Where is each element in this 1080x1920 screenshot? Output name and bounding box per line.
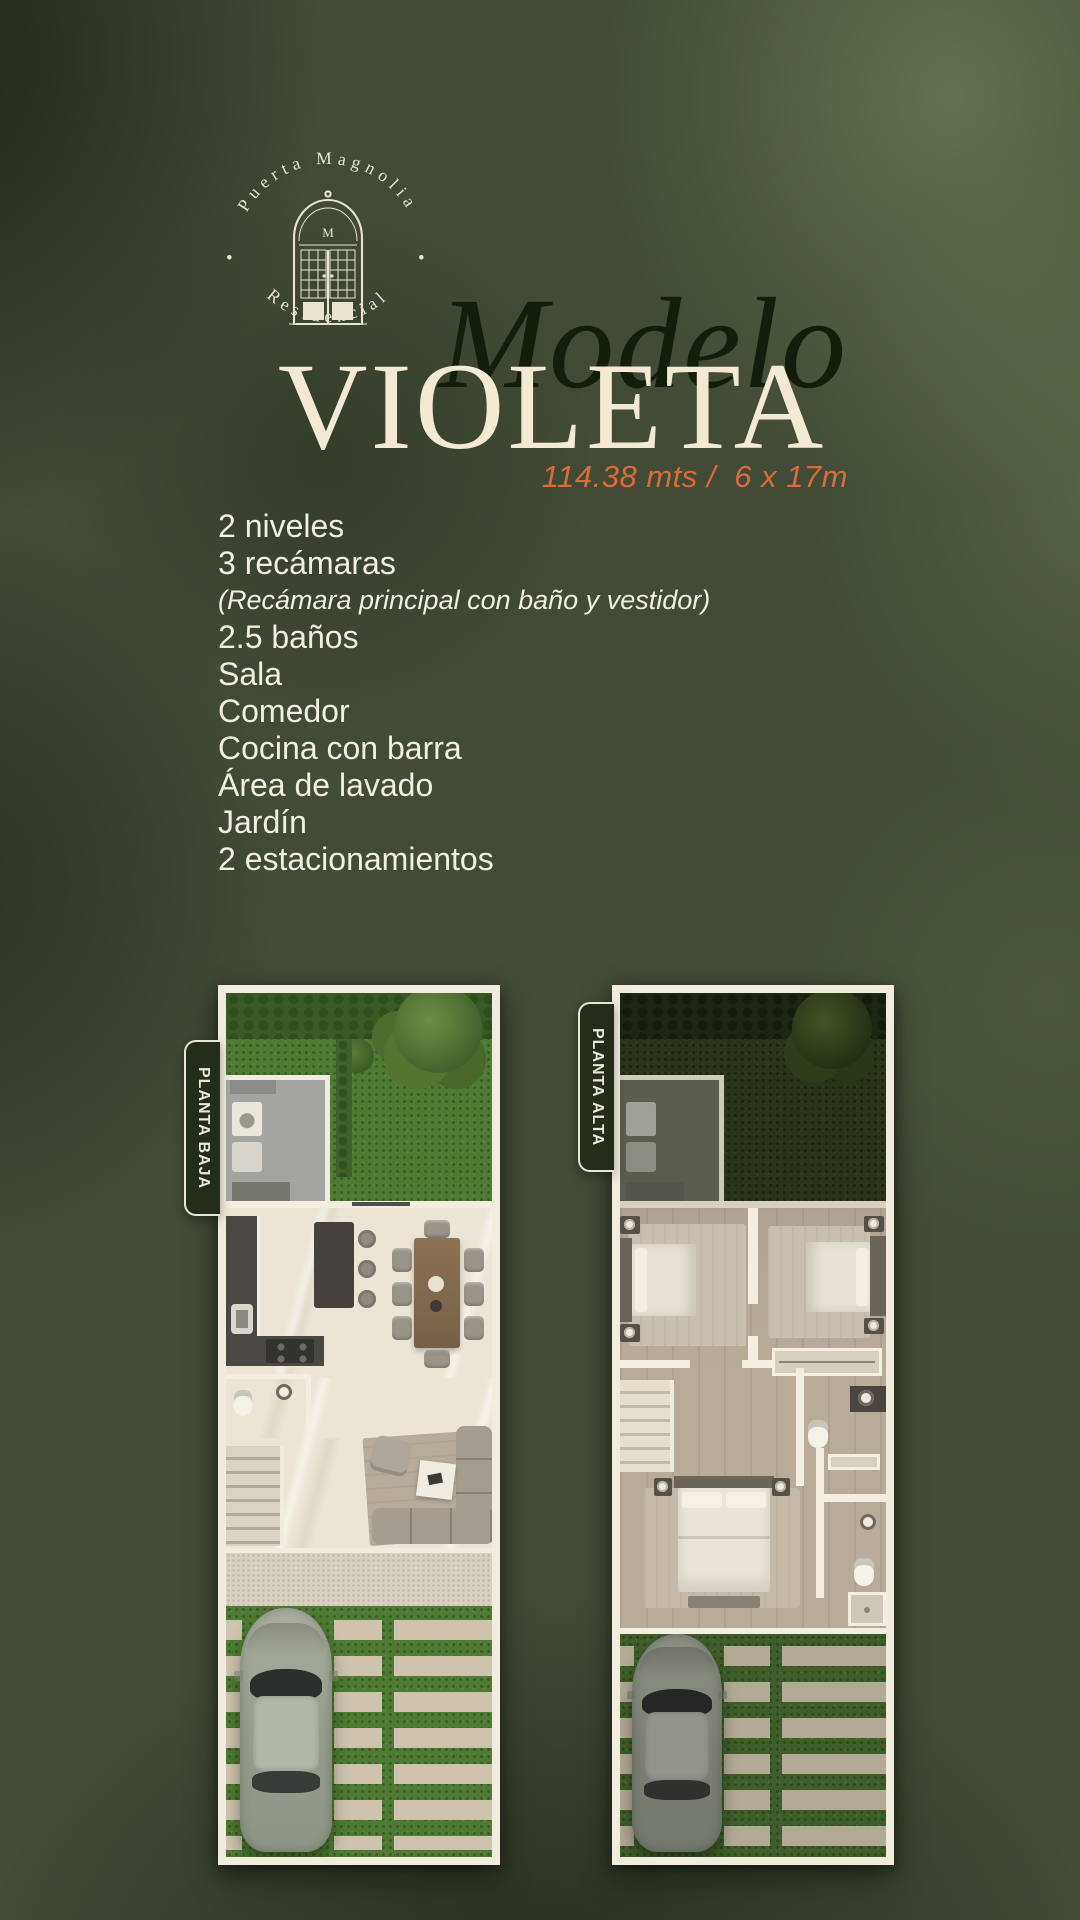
- feature-item: Jardín: [218, 804, 710, 841]
- bedroom-divider-wall: [748, 1208, 758, 1304]
- dining-chair: [424, 1220, 450, 1238]
- interior-upper-floor: [620, 1208, 886, 1634]
- lamp: [657, 1481, 668, 1492]
- paver-strip: [394, 1620, 492, 1850]
- model-dimensions: 114.38 mts / 6 x 17m: [542, 461, 848, 492]
- dining-table: [414, 1238, 460, 1348]
- bedroom1-pillow: [635, 1248, 647, 1312]
- front-sidewalk: [226, 1548, 492, 1606]
- shelf: [230, 1080, 276, 1094]
- stove: [266, 1339, 314, 1363]
- brand-bullet-left: •: [226, 248, 233, 269]
- powder-sink: [276, 1384, 292, 1400]
- sofa-sectional-horizontal: [372, 1508, 492, 1544]
- floorplan-planta-alta: [612, 985, 894, 1865]
- kitchen-island-bar: [314, 1222, 354, 1308]
- bar-stool: [358, 1230, 376, 1248]
- kitchen-sink: [231, 1304, 253, 1334]
- lamp: [624, 1219, 635, 1230]
- hedge-strip: [336, 1039, 352, 1177]
- garden-wall: [620, 1201, 886, 1208]
- tree: [792, 993, 872, 1069]
- driveway-ground-floor: [226, 1606, 492, 1857]
- staircase: [620, 1380, 674, 1472]
- feature-item: 2.5 baños: [218, 619, 710, 656]
- master-wall: [816, 1494, 886, 1502]
- dining-chair: [464, 1316, 484, 1340]
- paver-strip: [334, 1620, 382, 1850]
- feature-item: Área de lavado: [218, 767, 710, 804]
- walkin-closet: [828, 1454, 880, 1470]
- brand-monogram: M: [322, 225, 334, 240]
- dining-chair: [392, 1248, 412, 1272]
- dryer: [232, 1142, 262, 1172]
- flyer-canvas: Puerta Magnolia Residencial • • M Modelo…: [0, 0, 1080, 1920]
- feature-item: 2 estacionamientos: [218, 841, 710, 878]
- planta-alta-label: PLANTA ALTA: [578, 1002, 614, 1172]
- bath-wall: [796, 1368, 804, 1486]
- parked-car: [632, 1634, 722, 1852]
- closet: [772, 1348, 882, 1376]
- laundry-patio-room-shaded: [620, 1075, 724, 1208]
- floorplan-planta-baja: [218, 985, 500, 1865]
- paver-strip: [724, 1646, 770, 1850]
- bedroom2-headboard: [870, 1236, 886, 1316]
- dining-chair: [464, 1248, 484, 1272]
- dining-chair: [392, 1316, 412, 1340]
- brand-arc-top-text: Puerta Magnolia: [233, 148, 423, 215]
- bath-wall: [226, 1374, 310, 1379]
- dining-chair: [464, 1282, 484, 1306]
- toilet: [234, 1390, 252, 1416]
- feature-item: Sala: [218, 656, 710, 693]
- staircase: [226, 1446, 284, 1546]
- dining-chair: [392, 1282, 412, 1306]
- model-name-title: VIOLETA: [278, 345, 826, 469]
- lamp: [775, 1481, 786, 1492]
- lamp: [868, 1218, 879, 1229]
- feature-item: 2 niveles: [218, 508, 710, 545]
- feature-item: 3 recámaras: [218, 545, 710, 582]
- tree: [394, 993, 482, 1073]
- parked-car: [240, 1608, 332, 1852]
- bedroom2-pillow: [856, 1248, 868, 1306]
- brand-bullet-right: •: [418, 248, 425, 269]
- bar-stool: [358, 1290, 376, 1308]
- lamp: [624, 1327, 635, 1338]
- bath-sink: [858, 1390, 874, 1406]
- master-bed: [678, 1488, 770, 1592]
- dining-chair: [424, 1350, 450, 1368]
- garden-ground-floor: [226, 993, 492, 1208]
- hall-wall: [620, 1360, 690, 1368]
- glass-door: [352, 1202, 410, 1206]
- bed-bench: [688, 1596, 760, 1608]
- toilet: [808, 1420, 828, 1448]
- interior-ground-floor: [226, 1208, 492, 1548]
- feature-item: Cocina con barra: [218, 730, 710, 767]
- washer: [626, 1102, 656, 1136]
- master-headboard: [674, 1476, 774, 1488]
- driveway-upper-view: [620, 1634, 886, 1857]
- dryer: [626, 1142, 656, 1172]
- bath-wall: [306, 1374, 311, 1434]
- bedroom1-headboard: [620, 1238, 632, 1322]
- lamp: [868, 1320, 879, 1331]
- planta-baja-label: PLANTA BAJA: [184, 1040, 220, 1216]
- laundry-patio-room: [226, 1075, 330, 1208]
- bar-stool: [358, 1260, 376, 1278]
- washer: [232, 1102, 262, 1136]
- features-list: 2 niveles3 recámaras(Recámara principal …: [218, 508, 710, 878]
- garden-upper-view: [620, 993, 886, 1208]
- master-wall: [816, 1448, 824, 1598]
- paver-strip: [782, 1646, 886, 1850]
- master-toilet: [854, 1558, 874, 1586]
- feature-item: Comedor: [218, 693, 710, 730]
- master-bath-sink: [860, 1514, 876, 1530]
- feature-item: (Recámara principal con baño y vestidor): [218, 582, 710, 619]
- coffee-table: [416, 1460, 456, 1500]
- shower: [848, 1592, 886, 1626]
